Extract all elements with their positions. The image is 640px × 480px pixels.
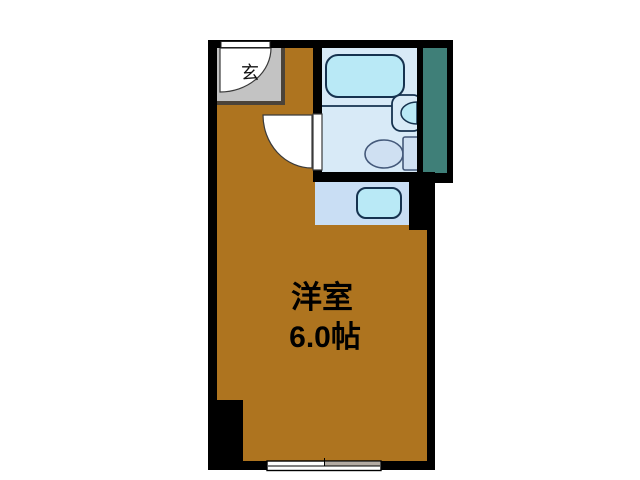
entrance-step-edge-right xyxy=(281,48,285,105)
entrance-step-edge-bottom xyxy=(213,101,285,105)
entrance-label: 玄 xyxy=(241,63,259,83)
bathtub-icon xyxy=(326,55,404,97)
floorplan: 玄 洋 xyxy=(0,0,640,480)
wall-bottom-left-pillar xyxy=(208,400,243,470)
floorplan-drawing: 玄 洋 xyxy=(0,0,640,480)
kitchen-sink-icon xyxy=(357,188,401,218)
main-room-size-label: 6.0帖 xyxy=(289,321,361,354)
room-door-leaf xyxy=(313,114,322,170)
wall-right xyxy=(427,230,435,470)
main-room-label: 洋室 xyxy=(291,280,353,315)
toilet-bowl-icon xyxy=(365,140,403,168)
wall-bathroom-bottom xyxy=(313,172,425,182)
entry-door-opening xyxy=(221,42,270,48)
duct-space xyxy=(423,48,447,173)
sliding-window-pane xyxy=(324,462,380,466)
